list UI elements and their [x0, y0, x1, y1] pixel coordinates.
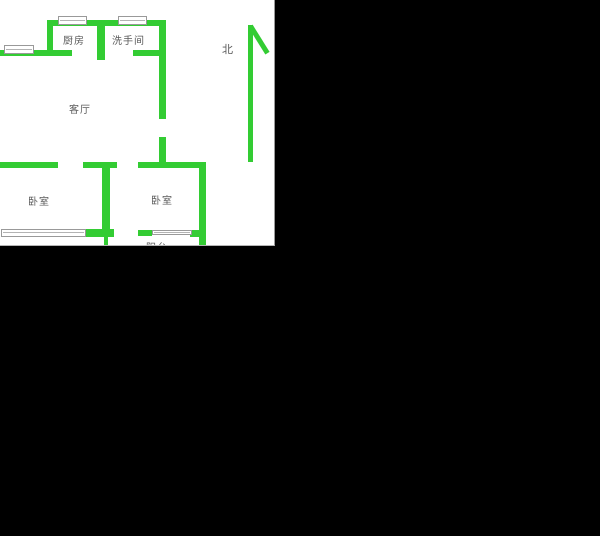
wall-kitchen-bathroom-divider	[97, 20, 105, 60]
window-living-room	[4, 45, 34, 54]
bedroom-right-label: 卧室	[151, 192, 173, 207]
window-midline	[6, 49, 32, 50]
wall-window-cross	[85, 229, 114, 237]
window-balcony	[152, 230, 192, 235]
wall-balcony-stub-left	[138, 230, 152, 236]
window-bathroom	[118, 16, 147, 25]
balcony-label: 阳台	[146, 239, 168, 246]
wall-bedroom-divider	[102, 168, 110, 236]
window-midline	[154, 232, 190, 233]
floorplan-canvas: 厨房 洗手间 客厅 卧室 卧室 阳台 北	[0, 0, 275, 246]
window-kitchen	[58, 16, 87, 25]
north-label: 北	[222, 41, 233, 57]
wall-bedrooms-top-left	[0, 162, 58, 168]
north-arrow-icon	[248, 25, 253, 162]
screenshot-background: 厨房 洗手间 客厅 卧室 卧室 阳台 北	[0, 0, 600, 536]
bathroom-label: 洗手间	[112, 32, 145, 47]
window-midline	[120, 20, 145, 21]
window-bedroom-left	[1, 229, 86, 237]
window-midline	[3, 232, 84, 233]
wall-bedrooms-top-right	[138, 162, 206, 168]
wall-bathroom-bottom	[133, 50, 159, 56]
wall-bedrooms-top-middle	[83, 162, 117, 168]
wall-bedroom-divider-lower	[104, 236, 108, 245]
wall-east-upper	[159, 20, 166, 119]
window-midline	[60, 20, 85, 21]
kitchen-label: 厨房	[63, 32, 85, 47]
living-room-label: 客厅	[69, 101, 91, 116]
bedroom-left-label: 卧室	[28, 193, 50, 208]
wall-bedroom-east	[199, 168, 206, 246]
